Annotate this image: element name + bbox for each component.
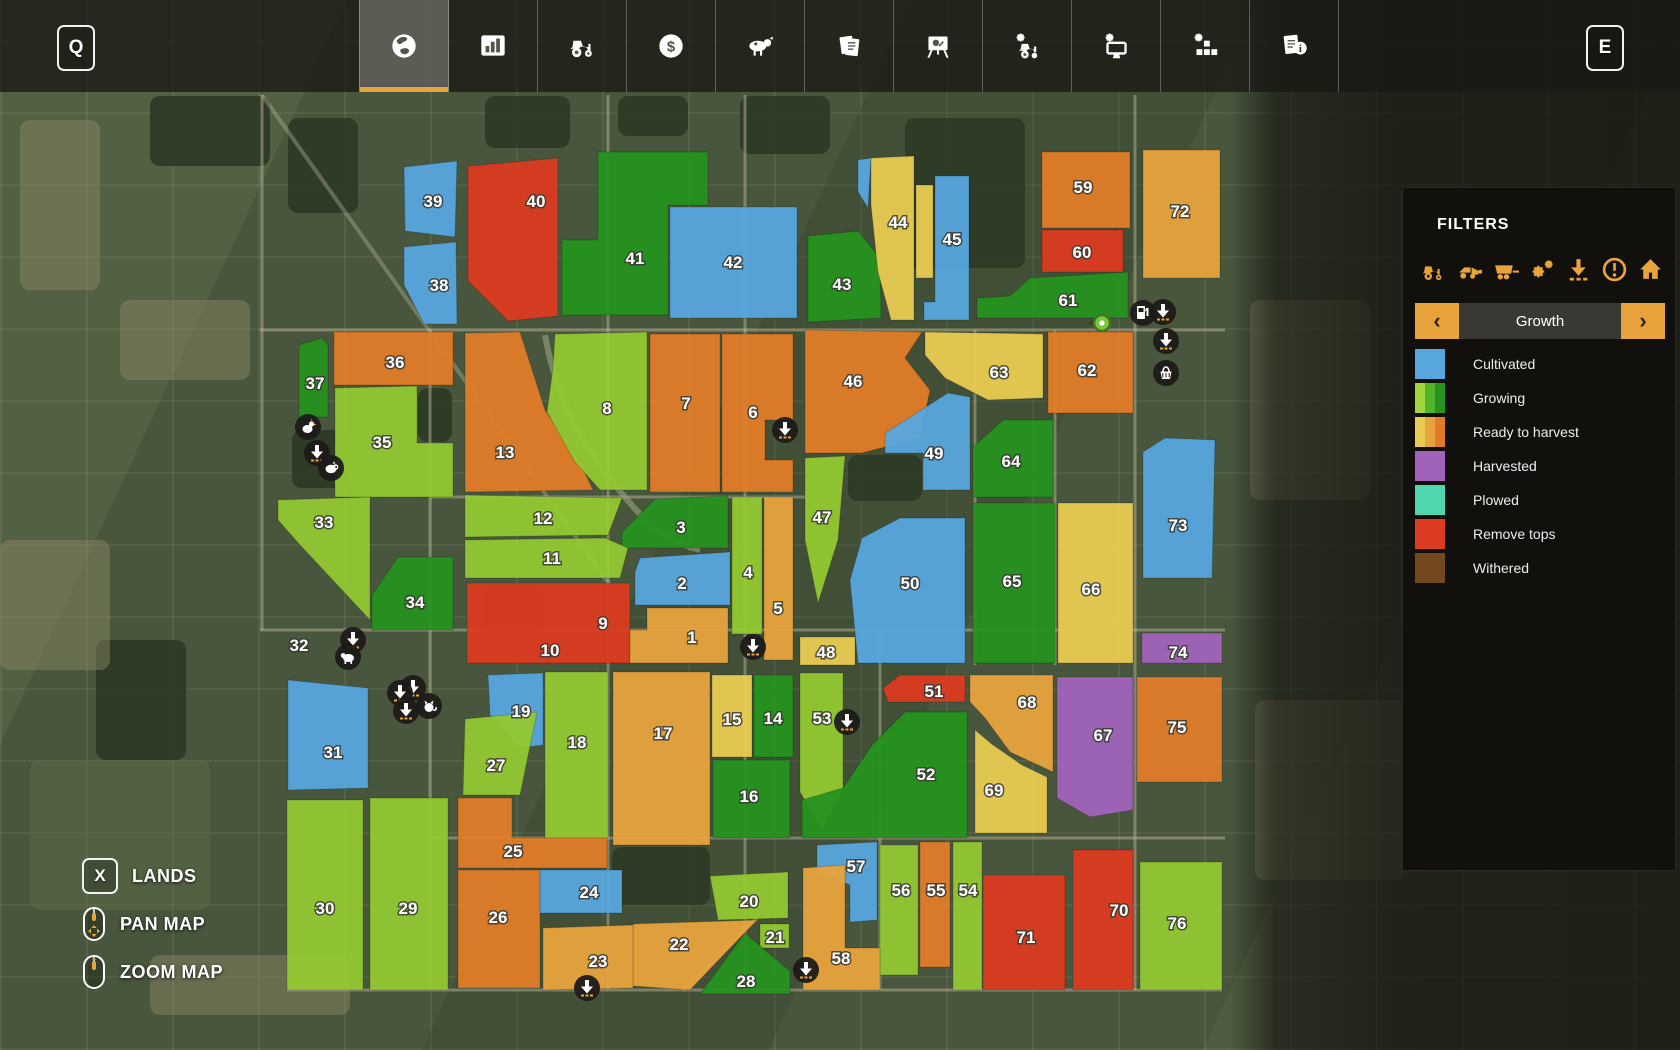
field-label-64: 64	[1002, 452, 1021, 471]
field-label-49: 49	[925, 444, 944, 463]
field-label-43: 43	[833, 275, 852, 294]
mouse-zoom-icon	[82, 954, 106, 990]
field-label-11: 11	[543, 549, 561, 568]
field-label-21: 21	[766, 928, 785, 947]
field-31[interactable]	[288, 680, 368, 790]
field-label-51: 51	[925, 682, 944, 701]
poi-pig-icon[interactable]	[318, 455, 344, 481]
tab-easel-chart[interactable]	[894, 0, 983, 92]
field-73[interactable]	[1143, 438, 1215, 578]
field-label-38: 38	[430, 276, 449, 295]
legend-label: Remove tops	[1473, 526, 1555, 542]
tab-monitor-gear[interactable]	[1072, 0, 1161, 92]
legend: CultivatedGrowingReady to harvestHarvest…	[1415, 347, 1675, 585]
field-label-48: 48	[817, 643, 836, 662]
field-label-66: 66	[1082, 580, 1101, 599]
legend-label: Growing	[1473, 390, 1525, 406]
field-3[interactable]	[622, 496, 728, 548]
field-label-69: 69	[985, 781, 1004, 800]
field-label-15: 15	[723, 710, 742, 729]
field-label-27: 27	[487, 756, 506, 775]
control-label: LANDS	[132, 866, 197, 887]
control-label: ZOOM MAP	[120, 962, 223, 983]
field-label-55: 55	[927, 881, 946, 900]
field-67[interactable]	[1057, 677, 1133, 817]
field-label-50: 50	[901, 574, 920, 593]
field-label-56: 56	[892, 881, 911, 900]
svg-text:$: $	[667, 39, 676, 55]
hotkey-q-badge: Q	[57, 25, 95, 71]
legend-label: Harvested	[1473, 458, 1537, 474]
legend-row: Growing	[1415, 381, 1675, 415]
filter-loader-icon[interactable]	[1457, 256, 1484, 283]
field-56[interactable]	[880, 845, 918, 975]
field-label-63: 63	[990, 363, 1009, 382]
tractor-icon	[565, 29, 599, 63]
poi-download-icon[interactable]	[740, 634, 766, 660]
field-40[interactable]	[468, 158, 558, 321]
poi-sheep-icon[interactable]	[335, 644, 361, 670]
field-26[interactable]	[458, 870, 540, 988]
control-row-pan-map: PAN MAP	[82, 900, 223, 948]
field-label-37: 37	[306, 374, 325, 393]
field-label-54: 54	[959, 881, 978, 900]
field-7[interactable]	[650, 334, 720, 492]
poi-download-icon[interactable]	[772, 417, 798, 443]
hotkey-e-badge: E	[1586, 25, 1624, 71]
field-label-57: 57	[847, 857, 866, 876]
field-label-5: 5	[773, 599, 782, 618]
tab-globe[interactable]	[359, 0, 449, 92]
selector-next-button[interactable]: ›	[1621, 303, 1665, 339]
filter-house-icon[interactable]	[1637, 256, 1664, 283]
field-27[interactable]	[463, 712, 537, 795]
legend-row: Harvested	[1415, 449, 1675, 483]
hotkey-e-label: E	[1599, 37, 1612, 59]
tractor-gear-icon	[1010, 29, 1044, 63]
field-part[interactable]	[858, 158, 871, 208]
poi-download-icon[interactable]	[393, 698, 419, 724]
field-label-31: 31	[324, 743, 343, 762]
field-5[interactable]	[764, 497, 793, 660]
bar-chart-icon	[476, 29, 510, 63]
field-label-32: 32	[290, 636, 309, 655]
field-label-29: 29	[399, 899, 418, 918]
mouse-pan-icon	[82, 906, 106, 942]
filters-panel: FILTERS ‹ Growth › CultivatedGrowingRead…	[1402, 187, 1676, 871]
field-label-2: 2	[677, 574, 686, 593]
field-70[interactable]	[1073, 850, 1133, 990]
field-label-74: 74	[1169, 643, 1188, 662]
field-61[interactable]	[977, 272, 1128, 318]
field-label-1: 1	[687, 628, 696, 647]
field-label-65: 65	[1003, 572, 1022, 591]
field-label-39: 39	[424, 192, 443, 211]
field-label-20: 20	[740, 892, 759, 911]
field-label-67: 67	[1094, 726, 1113, 745]
field-35[interactable]	[335, 386, 453, 497]
field-label-10: 10	[541, 641, 560, 660]
field-label-16: 16	[740, 787, 759, 806]
field-label-45: 45	[943, 230, 962, 249]
legend-swatch	[1415, 451, 1445, 481]
poi-chicken-icon[interactable]	[295, 414, 321, 440]
svg-text:i: i	[1299, 44, 1302, 55]
legend-swatch	[1415, 383, 1445, 413]
field-label-3: 3	[676, 518, 685, 537]
field-label-7: 7	[681, 394, 690, 413]
legend-label: Plowed	[1473, 492, 1519, 508]
field-54[interactable]	[953, 842, 982, 990]
field-label-14: 14	[764, 709, 783, 728]
field-label-13: 13	[496, 443, 515, 462]
filters-title: FILTERS	[1437, 216, 1675, 234]
easel-chart-icon	[921, 29, 955, 63]
tab-cow[interactable]	[716, 0, 805, 92]
poi-download-icon[interactable]	[1150, 299, 1176, 325]
control-row-lands: XLANDS	[82, 852, 223, 900]
field-label-34: 34	[406, 593, 425, 612]
legend-swatch	[1415, 519, 1445, 549]
field-55[interactable]	[920, 842, 950, 967]
field-18[interactable]	[545, 672, 608, 838]
field-label-19: 19	[512, 702, 531, 721]
documents-icon	[832, 29, 866, 63]
monitor-gear-icon	[1099, 29, 1133, 63]
legend-swatch	[1415, 349, 1445, 379]
field-label-53: 53	[813, 709, 832, 728]
field-label-68: 68	[1018, 693, 1037, 712]
field-label-52: 52	[917, 765, 936, 784]
cow-icon	[743, 29, 777, 63]
field-label-72: 72	[1171, 202, 1190, 221]
field-label-8: 8	[602, 399, 611, 418]
tab-document-info[interactable]: i	[1250, 0, 1339, 92]
field-label-71: 71	[1017, 928, 1036, 947]
hotkey-x-badge: X	[82, 858, 118, 894]
selector-current-label: Growth	[1459, 303, 1621, 339]
tab-blocks-gear[interactable]	[1161, 0, 1250, 92]
field-part[interactable]	[916, 185, 933, 278]
field-label-36: 36	[386, 353, 405, 372]
field-label-30: 30	[316, 899, 335, 918]
selector-prev-button[interactable]: ‹	[1415, 303, 1459, 339]
legend-label: Withered	[1473, 560, 1529, 576]
field-label-60: 60	[1073, 243, 1092, 262]
tab-dollar[interactable]: $	[627, 0, 716, 92]
blocks-gear-icon	[1188, 29, 1222, 63]
field-63[interactable]	[925, 332, 1043, 400]
legend-label: Ready to harvest	[1473, 424, 1579, 440]
field-1[interactable]	[630, 608, 728, 663]
field-label-6: 6	[748, 403, 757, 422]
legend-row: Cultivated	[1415, 347, 1675, 381]
field-label-18: 18	[568, 733, 587, 752]
filter-gears-icon[interactable]	[1529, 256, 1556, 283]
legend-swatch	[1415, 553, 1445, 583]
legend-row: Remove tops	[1415, 517, 1675, 551]
field-label-26: 26	[489, 908, 508, 927]
legend-label: Cultivated	[1473, 356, 1535, 372]
field-label-24: 24	[580, 883, 599, 902]
field-label-28: 28	[737, 972, 756, 991]
field-label-76: 76	[1168, 914, 1187, 933]
field-label-33: 33	[315, 513, 334, 532]
field-label-46: 46	[844, 372, 863, 391]
tab-bar-chart[interactable]	[449, 0, 538, 92]
poi-download-icon[interactable]	[574, 975, 600, 1001]
topbar-tabs: $i	[359, 0, 1339, 92]
map-controls-help: XLANDSPAN MAPZOOM MAP	[82, 852, 223, 996]
legend-swatch	[1415, 485, 1445, 515]
field-label-12: 12	[534, 509, 553, 528]
poi-cat-icon[interactable]	[416, 693, 442, 719]
field-label-9: 9	[598, 614, 607, 633]
field-label-70: 70	[1110, 901, 1129, 920]
poi-download-icon[interactable]	[793, 957, 819, 983]
legend-swatch	[1415, 417, 1445, 447]
poi-basket-icon[interactable]	[1153, 360, 1179, 386]
field-label-59: 59	[1074, 178, 1093, 197]
control-row-zoom-map: ZOOM MAP	[82, 948, 223, 996]
field-label-35: 35	[373, 433, 392, 452]
hotkey-q-label: Q	[69, 37, 84, 59]
field-label-73: 73	[1169, 516, 1188, 535]
field-label-25: 25	[504, 842, 523, 861]
top-menu-bar: Q $i E	[0, 0, 1680, 92]
field-17[interactable]	[613, 672, 710, 845]
category-selector: ‹ Growth ›	[1415, 303, 1665, 339]
field-30[interactable]	[287, 800, 363, 990]
filter-trailer-icon[interactable]	[1493, 256, 1520, 283]
field-label-58: 58	[832, 949, 851, 968]
document-info-icon: i	[1277, 29, 1311, 63]
legend-row: Ready to harvest	[1415, 415, 1675, 449]
field-label-41: 41	[626, 249, 645, 268]
field-label-61: 61	[1059, 291, 1078, 310]
filter-tractor-icon[interactable]	[1421, 256, 1448, 283]
poi-download-icon[interactable]	[834, 709, 860, 735]
tab-documents[interactable]	[805, 0, 894, 92]
field-29[interactable]	[370, 798, 448, 990]
field-label-22: 22	[670, 935, 689, 954]
legend-row: Plowed	[1415, 483, 1675, 517]
field-label-75: 75	[1168, 718, 1187, 737]
poi-download-icon[interactable]	[1153, 328, 1179, 354]
field-label-23: 23	[589, 952, 608, 971]
field-label-62: 62	[1078, 361, 1097, 380]
tab-tractor[interactable]	[538, 0, 627, 92]
field-label-42: 42	[724, 253, 743, 272]
field-label-47: 47	[813, 508, 832, 527]
field-47[interactable]	[805, 456, 845, 603]
field-label-40: 40	[527, 192, 546, 211]
filter-download-icon[interactable]	[1565, 256, 1592, 283]
dollar-icon: $	[654, 29, 688, 63]
control-label: PAN MAP	[120, 914, 205, 935]
field-label-44: 44	[889, 213, 908, 232]
globe-icon	[387, 29, 421, 63]
filter-alert-icon[interactable]	[1601, 256, 1628, 283]
field-label-4: 4	[743, 563, 753, 582]
legend-row: Withered	[1415, 551, 1675, 585]
field-label-17: 17	[654, 724, 673, 743]
filter-icon-row	[1421, 256, 1675, 283]
tab-tractor-gear[interactable]	[983, 0, 1072, 92]
